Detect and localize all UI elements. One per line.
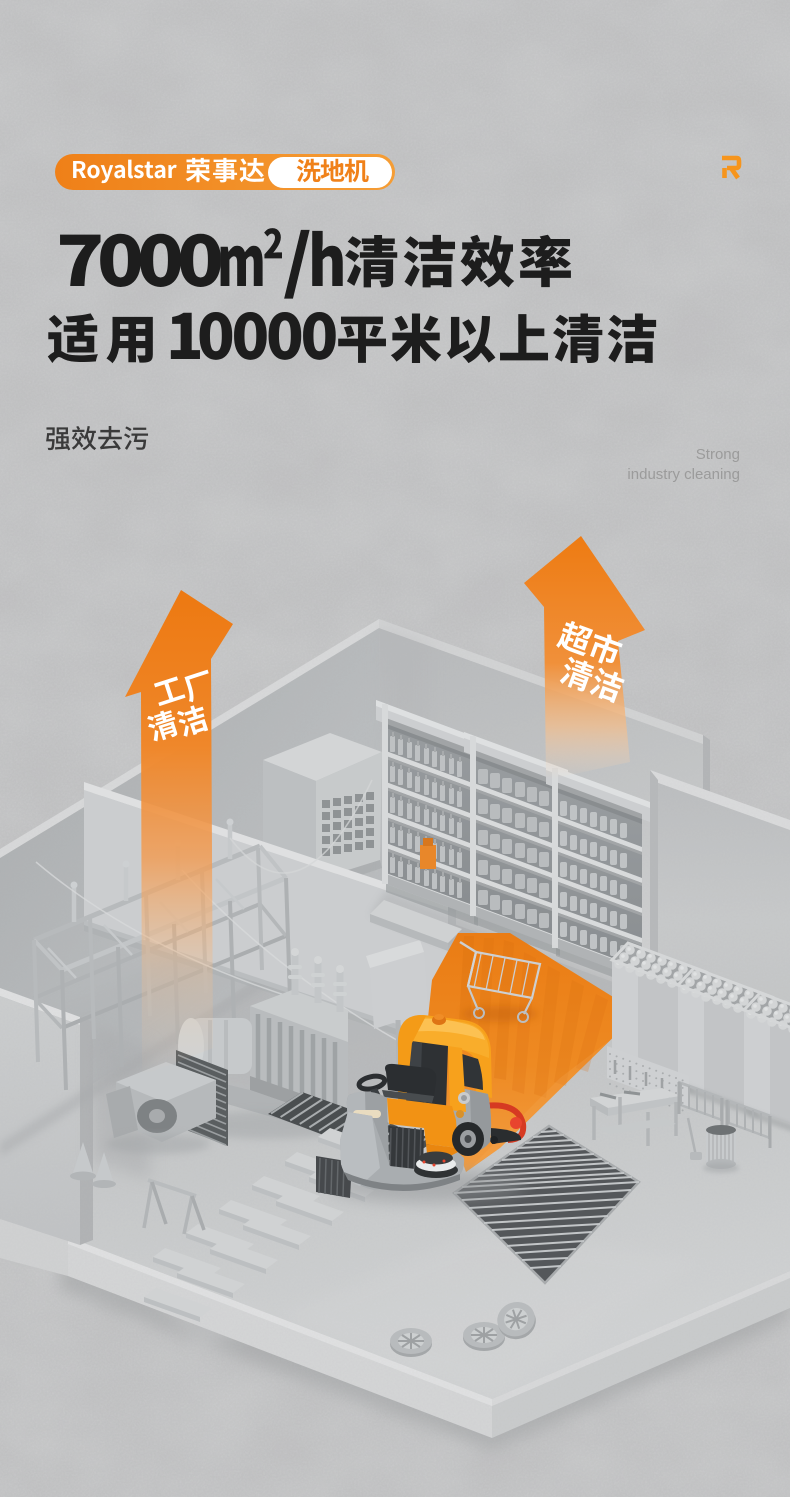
svg-text:industry cleaning: industry cleaning — [627, 466, 740, 483]
svg-text:Strong: Strong — [696, 446, 740, 463]
